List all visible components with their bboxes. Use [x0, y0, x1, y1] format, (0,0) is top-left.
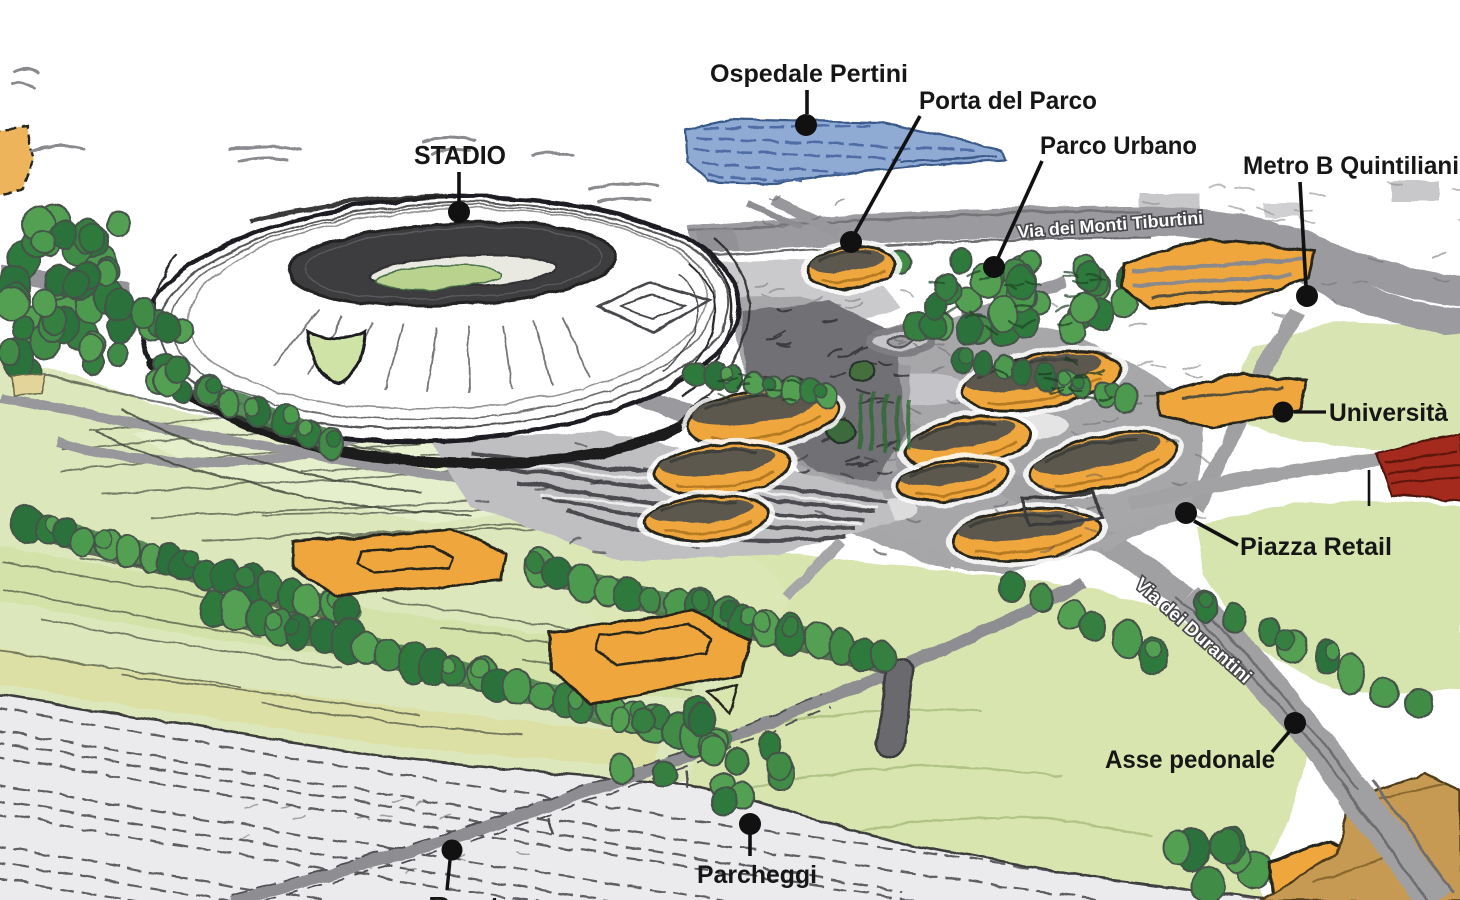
svg-text:Ponte: Ponte: [428, 891, 518, 900]
svg-text:Piazza Retail: Piazza Retail: [1240, 533, 1392, 561]
svg-text:Asse pedonale: Asse pedonale: [1105, 746, 1275, 774]
svg-text:STADIO: STADIO: [414, 140, 506, 170]
svg-text:Metro B Quintiliani: Metro B Quintiliani: [1243, 152, 1459, 180]
svg-text:Parco Urbano: Parco Urbano: [1040, 132, 1197, 160]
svg-text:Porta del Parco: Porta del Parco: [919, 87, 1097, 115]
svg-text:Ospedale Pertini: Ospedale Pertini: [710, 60, 908, 88]
svg-text:Università: Università: [1329, 399, 1448, 427]
svg-text:Parcheggi: Parcheggi: [697, 861, 817, 889]
